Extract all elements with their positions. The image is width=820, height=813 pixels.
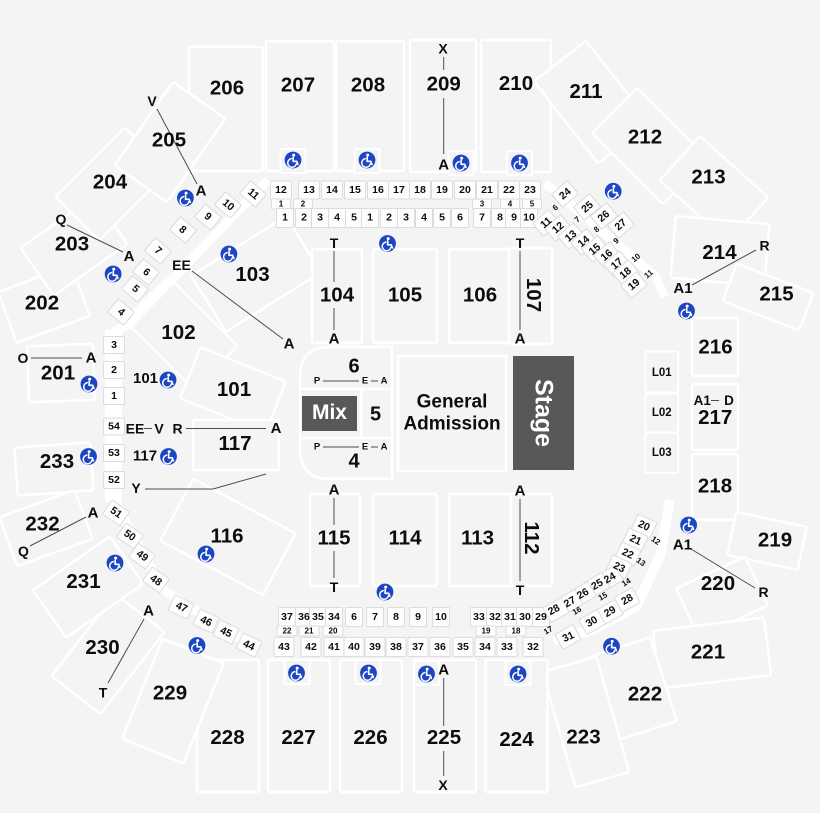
svg-text:221: 221 bbox=[691, 641, 725, 664]
svg-text:42: 42 bbox=[305, 641, 317, 653]
svg-text:A: A bbox=[124, 248, 135, 265]
svg-text:39: 39 bbox=[369, 641, 381, 653]
svg-text:32: 32 bbox=[527, 641, 539, 653]
svg-text:106: 106 bbox=[463, 284, 497, 307]
svg-text:215: 215 bbox=[759, 283, 793, 306]
svg-text:A1: A1 bbox=[673, 280, 692, 297]
svg-text:233: 233 bbox=[40, 450, 74, 473]
svg-text:4: 4 bbox=[508, 200, 513, 209]
svg-text:20: 20 bbox=[329, 627, 338, 636]
svg-text:6: 6 bbox=[348, 356, 359, 378]
svg-text:L03: L03 bbox=[652, 447, 672, 459]
svg-text:18: 18 bbox=[414, 184, 426, 196]
svg-text:37: 37 bbox=[281, 611, 293, 623]
svg-text:12: 12 bbox=[275, 184, 287, 196]
svg-text:219: 219 bbox=[758, 529, 792, 552]
svg-text:18: 18 bbox=[512, 627, 521, 636]
svg-text:5: 5 bbox=[439, 212, 445, 224]
svg-text:32: 32 bbox=[489, 611, 501, 623]
svg-text:218: 218 bbox=[698, 475, 732, 498]
svg-text:208: 208 bbox=[351, 74, 385, 97]
svg-text:211: 211 bbox=[569, 80, 602, 103]
svg-text:224: 224 bbox=[499, 728, 534, 751]
svg-text:107: 107 bbox=[522, 278, 545, 312]
svg-text:3: 3 bbox=[403, 212, 409, 224]
svg-text:A: A bbox=[284, 336, 295, 353]
svg-text:114: 114 bbox=[388, 527, 422, 550]
svg-text:117: 117 bbox=[133, 448, 157, 465]
svg-text:34: 34 bbox=[479, 641, 491, 653]
svg-text:1: 1 bbox=[367, 212, 373, 224]
svg-text:D: D bbox=[724, 393, 734, 408]
svg-text:4: 4 bbox=[421, 212, 427, 224]
svg-text:30: 30 bbox=[519, 611, 531, 623]
svg-text:19: 19 bbox=[482, 627, 491, 636]
svg-text:T: T bbox=[330, 235, 339, 251]
svg-text:X: X bbox=[438, 41, 448, 57]
svg-text:104: 104 bbox=[320, 284, 355, 307]
svg-text:15: 15 bbox=[349, 184, 361, 196]
svg-text:P: P bbox=[314, 442, 321, 453]
svg-text:216: 216 bbox=[698, 336, 732, 359]
svg-text:T: T bbox=[516, 235, 525, 251]
svg-text:9: 9 bbox=[415, 611, 421, 623]
svg-text:202: 202 bbox=[25, 292, 59, 315]
svg-text:2: 2 bbox=[111, 364, 117, 376]
svg-text:R: R bbox=[758, 584, 768, 600]
svg-text:232: 232 bbox=[25, 513, 59, 536]
svg-text:13: 13 bbox=[303, 184, 315, 196]
svg-text:14: 14 bbox=[326, 184, 338, 196]
svg-text:5: 5 bbox=[530, 200, 535, 209]
svg-text:5: 5 bbox=[370, 403, 381, 425]
svg-text:6: 6 bbox=[457, 212, 463, 224]
svg-text:EE: EE bbox=[172, 257, 191, 273]
svg-text:L02: L02 bbox=[652, 407, 672, 419]
svg-text:P: P bbox=[314, 376, 321, 387]
svg-text:2: 2 bbox=[301, 212, 307, 224]
svg-text:225: 225 bbox=[427, 726, 461, 749]
svg-text:7: 7 bbox=[479, 212, 485, 224]
svg-text:222: 222 bbox=[628, 683, 662, 706]
svg-text:Q: Q bbox=[18, 543, 29, 559]
svg-text:Stage: Stage bbox=[530, 379, 558, 447]
svg-text:A: A bbox=[438, 157, 449, 174]
svg-text:Y: Y bbox=[131, 480, 141, 496]
svg-text:223: 223 bbox=[566, 726, 600, 749]
svg-text:203: 203 bbox=[55, 233, 89, 256]
svg-text:21: 21 bbox=[481, 184, 493, 196]
svg-text:16: 16 bbox=[372, 184, 384, 196]
svg-text:52: 52 bbox=[108, 474, 120, 486]
svg-text:35: 35 bbox=[457, 641, 469, 653]
svg-text:37: 37 bbox=[412, 641, 424, 653]
svg-text:4: 4 bbox=[334, 212, 340, 224]
svg-text:116: 116 bbox=[210, 525, 243, 548]
svg-text:A1: A1 bbox=[673, 537, 692, 554]
svg-text:A1: A1 bbox=[694, 393, 712, 408]
svg-text:38: 38 bbox=[390, 641, 402, 653]
svg-text:230: 230 bbox=[85, 636, 119, 659]
svg-text:205: 205 bbox=[152, 129, 186, 152]
svg-text:8: 8 bbox=[497, 212, 503, 224]
svg-text:40: 40 bbox=[348, 641, 360, 653]
svg-text:117: 117 bbox=[218, 432, 251, 455]
svg-text:226: 226 bbox=[353, 726, 387, 749]
svg-text:22: 22 bbox=[283, 627, 292, 636]
svg-text:21: 21 bbox=[305, 627, 314, 636]
svg-text:T: T bbox=[516, 582, 525, 598]
svg-text:101: 101 bbox=[217, 378, 251, 401]
svg-text:5: 5 bbox=[351, 212, 357, 224]
svg-text:General: General bbox=[417, 392, 488, 413]
svg-text:20: 20 bbox=[459, 184, 471, 196]
svg-text:209: 209 bbox=[427, 73, 461, 96]
svg-text:23: 23 bbox=[524, 184, 536, 196]
svg-text:227: 227 bbox=[281, 726, 315, 749]
svg-text:E: E bbox=[362, 442, 368, 453]
svg-text:31: 31 bbox=[504, 611, 516, 623]
svg-text:112: 112 bbox=[520, 521, 543, 554]
svg-text:229: 229 bbox=[153, 682, 187, 705]
svg-text:2: 2 bbox=[301, 200, 306, 209]
svg-text:3: 3 bbox=[480, 200, 485, 209]
svg-text:3: 3 bbox=[111, 339, 117, 351]
svg-text:102: 102 bbox=[161, 321, 195, 344]
svg-text:3: 3 bbox=[317, 212, 323, 224]
svg-text:R: R bbox=[759, 238, 769, 254]
svg-text:E: E bbox=[362, 376, 368, 387]
svg-text:Q: Q bbox=[56, 211, 67, 227]
svg-text:T: T bbox=[330, 579, 339, 595]
svg-text:207: 207 bbox=[281, 74, 315, 97]
svg-text:9: 9 bbox=[511, 212, 517, 224]
svg-text:4: 4 bbox=[348, 451, 360, 473]
svg-text:214: 214 bbox=[702, 241, 737, 264]
svg-text:A: A bbox=[329, 331, 340, 348]
svg-text:7: 7 bbox=[372, 611, 378, 623]
svg-text:O: O bbox=[18, 350, 29, 366]
svg-text:35: 35 bbox=[312, 611, 324, 623]
svg-text:43: 43 bbox=[278, 641, 290, 653]
svg-text:34: 34 bbox=[328, 611, 340, 623]
svg-text:A: A bbox=[88, 505, 99, 522]
svg-text:10: 10 bbox=[435, 611, 447, 623]
svg-text:A: A bbox=[438, 662, 449, 679]
svg-text:L01: L01 bbox=[652, 367, 672, 379]
svg-text:228: 228 bbox=[210, 726, 244, 749]
svg-text:41: 41 bbox=[328, 641, 340, 653]
svg-text:Mix: Mix bbox=[312, 401, 347, 424]
svg-text:213: 213 bbox=[691, 166, 725, 189]
svg-text:210: 210 bbox=[499, 72, 533, 95]
svg-text:29: 29 bbox=[535, 611, 547, 623]
svg-text:19: 19 bbox=[436, 184, 448, 196]
svg-text:A: A bbox=[271, 420, 282, 437]
svg-text:212: 212 bbox=[628, 126, 662, 149]
svg-text:22: 22 bbox=[503, 184, 515, 196]
svg-text:204: 204 bbox=[93, 171, 128, 194]
svg-text:V: V bbox=[154, 421, 164, 437]
svg-text:113: 113 bbox=[461, 527, 494, 550]
svg-text:8: 8 bbox=[393, 611, 399, 623]
svg-text:A: A bbox=[381, 376, 388, 387]
svg-text:17: 17 bbox=[393, 184, 405, 196]
svg-text:T: T bbox=[99, 685, 108, 701]
svg-text:Admission: Admission bbox=[403, 414, 500, 435]
svg-text:103: 103 bbox=[235, 263, 269, 286]
svg-text:A: A bbox=[515, 483, 526, 500]
svg-text:36: 36 bbox=[298, 611, 310, 623]
svg-text:10: 10 bbox=[523, 212, 535, 224]
svg-text:A: A bbox=[515, 331, 526, 348]
svg-text:231: 231 bbox=[66, 570, 100, 593]
svg-text:115: 115 bbox=[317, 527, 350, 550]
svg-text:105: 105 bbox=[388, 284, 422, 307]
svg-text:R: R bbox=[172, 421, 182, 437]
svg-text:36: 36 bbox=[434, 641, 446, 653]
svg-text:1: 1 bbox=[279, 200, 284, 209]
svg-text:V: V bbox=[147, 93, 157, 109]
svg-text:1: 1 bbox=[282, 212, 288, 224]
svg-text:201: 201 bbox=[41, 362, 75, 385]
svg-text:A: A bbox=[143, 603, 154, 620]
svg-text:X: X bbox=[438, 777, 448, 793]
svg-text:1: 1 bbox=[111, 390, 117, 402]
svg-text:A: A bbox=[381, 442, 388, 453]
svg-text:A: A bbox=[196, 183, 207, 200]
svg-text:54: 54 bbox=[108, 421, 120, 433]
svg-text:206: 206 bbox=[210, 77, 244, 100]
svg-text:33: 33 bbox=[501, 641, 513, 653]
svg-text:101: 101 bbox=[133, 370, 158, 387]
svg-text:217: 217 bbox=[698, 406, 732, 429]
svg-text:2: 2 bbox=[386, 212, 392, 224]
svg-text:33: 33 bbox=[473, 611, 485, 623]
svg-text:220: 220 bbox=[701, 572, 735, 595]
svg-text:A: A bbox=[329, 482, 340, 499]
svg-text:6: 6 bbox=[351, 611, 357, 623]
svg-text:EE: EE bbox=[126, 421, 145, 437]
svg-text:53: 53 bbox=[108, 447, 120, 459]
svg-text:A: A bbox=[86, 350, 97, 367]
